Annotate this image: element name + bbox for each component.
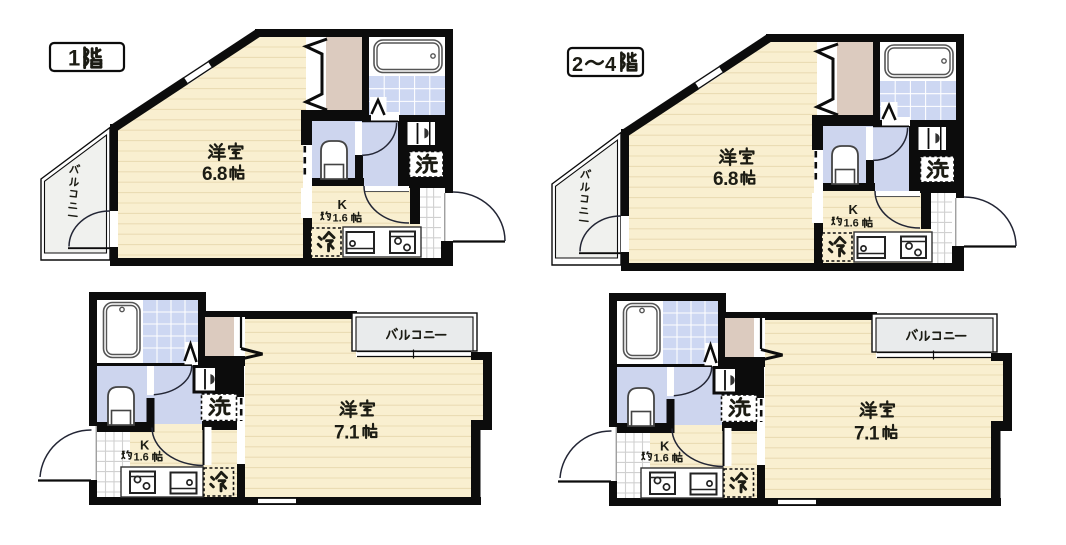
svg-text:2: 2	[572, 54, 583, 76]
svg-text:1.6: 1.6	[333, 213, 348, 225]
svg-text:6.8: 6.8	[713, 169, 738, 190]
svg-text:K: K	[338, 197, 348, 212]
svg-text:1: 1	[68, 46, 80, 71]
svg-text:1.6: 1.6	[844, 218, 859, 230]
svg-text:6.8: 6.8	[202, 164, 227, 185]
svg-text:K: K	[849, 202, 859, 217]
svg-text:7.1: 7.1	[334, 423, 360, 444]
svg-text:4: 4	[605, 54, 617, 76]
svg-text:7.1: 7.1	[854, 424, 880, 445]
svg-text:K: K	[140, 438, 150, 453]
svg-text:1.6: 1.6	[654, 453, 669, 465]
svg-text:K: K	[660, 439, 670, 454]
svg-text:1.6: 1.6	[134, 452, 149, 464]
